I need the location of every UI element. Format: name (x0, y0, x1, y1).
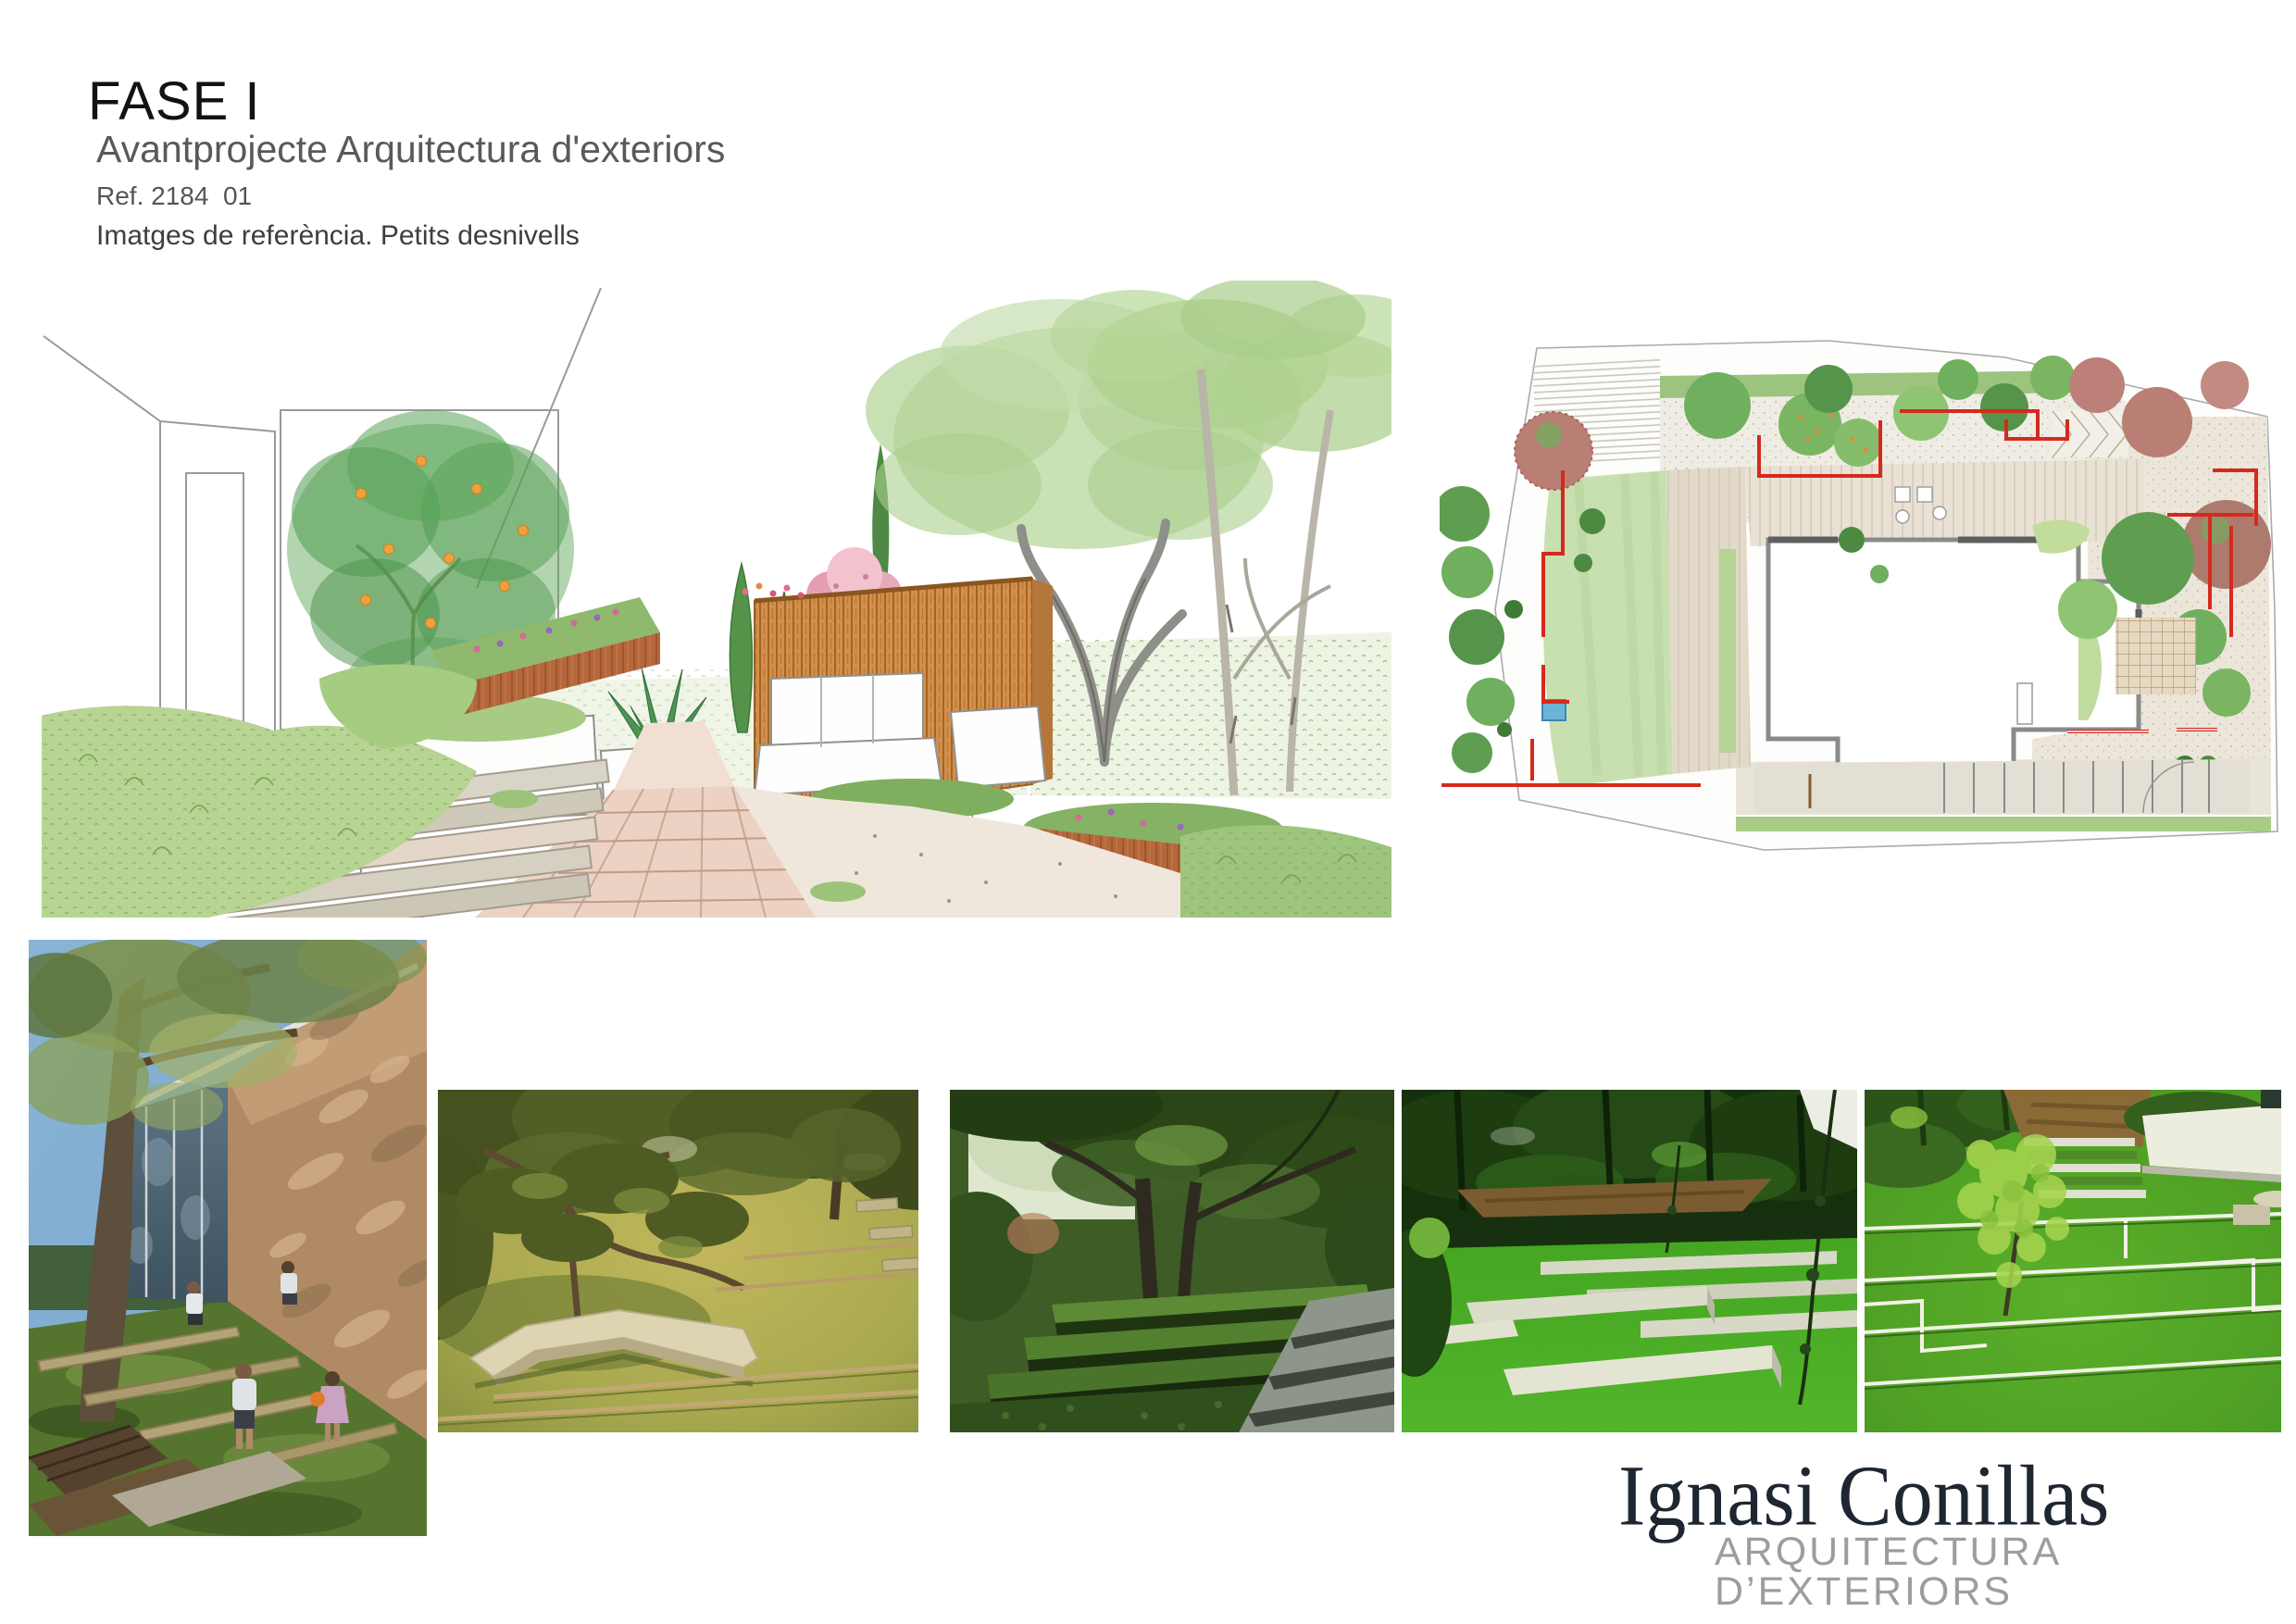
photo1-image (29, 940, 427, 1536)
photo-orchard-stone-bench (438, 1090, 918, 1432)
photo-shaded-grass-terraces (950, 1090, 1394, 1432)
brand-logo-name: Ignasi Conillas (1618, 1454, 2109, 1540)
site-plan-drawing (1440, 331, 2287, 878)
section-label: Imatges de referència. Petits desnivells (96, 220, 580, 252)
photo-geometric-lawn-terraces (1865, 1090, 2281, 1432)
project-reference: Ref. 2184 01 (96, 181, 252, 211)
brand-logo-tagline: ARQUITECTURA D’EXTERIORS (1715, 1532, 2296, 1612)
photo5-image (1865, 1090, 2281, 1432)
photo-lawn-amphitheatre (1402, 1090, 1857, 1432)
page-title: FASE I (88, 70, 261, 132)
garden-site-plan (1440, 331, 2287, 878)
photo3-image (950, 1090, 1394, 1432)
photo4-image (1402, 1090, 1857, 1432)
photo-log-terraces-children (29, 940, 427, 1536)
garden-perspective-sketch (42, 281, 1391, 918)
sketch-drawing (42, 281, 1391, 918)
photo2-image (438, 1090, 918, 1432)
portfolio-slide: FASE I Avantprojecte Arquitectura d'exte… (0, 0, 2296, 1624)
page-subtitle: Avantprojecte Arquitectura d'exteriors (96, 128, 725, 171)
